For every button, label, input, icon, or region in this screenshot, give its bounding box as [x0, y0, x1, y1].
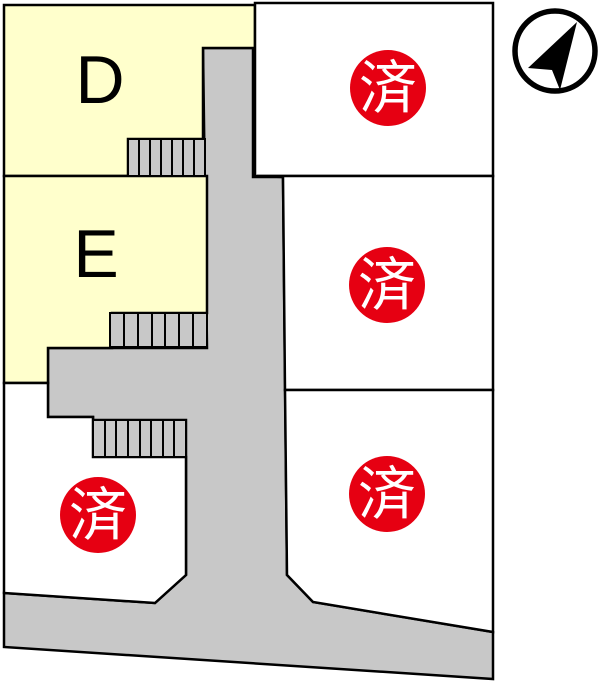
north-arrow-icon — [515, 11, 595, 91]
plot-e-label: E — [73, 216, 118, 292]
steps-icon — [93, 420, 186, 457]
steps-icon — [128, 139, 205, 176]
plot-d-label: D — [75, 42, 124, 118]
sold-mark-text: 済 — [358, 253, 416, 318]
sold-badge: 済 — [349, 247, 425, 323]
sold-mark-text: 済 — [69, 483, 127, 548]
sold-badge: 済 — [349, 456, 425, 532]
sold-mark-text: 済 — [358, 462, 416, 527]
sold-badge: 済 — [60, 477, 136, 553]
steps-icon — [110, 313, 207, 347]
sold-badge: 済 — [350, 50, 426, 126]
lot-map-canvas: D E 済 済 済 済 — [0, 0, 600, 684]
lot-map: D E 済 済 済 済 — [0, 0, 600, 684]
sold-mark-text: 済 — [359, 56, 417, 121]
